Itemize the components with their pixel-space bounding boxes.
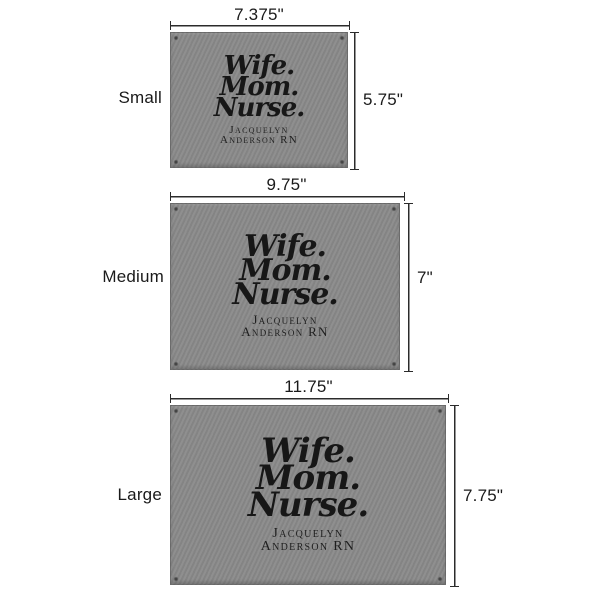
engraving-name-line-1: Jacquelyn xyxy=(261,527,356,540)
engraving-line-3: Nurse. xyxy=(214,98,305,119)
engraving-name-line-2: Anderson RN xyxy=(261,540,356,553)
engraving-name-line-2: Anderson RN xyxy=(220,135,298,145)
height-dimension-line xyxy=(404,203,413,372)
size-label: Medium xyxy=(50,267,164,287)
height-dimension-label: 7" xyxy=(417,268,433,288)
product-preview-medium: Wife. Mom. Nurse. Jacquelyn Anderson RN xyxy=(170,203,400,370)
width-dimension-line xyxy=(170,21,350,30)
size-label: Small xyxy=(50,88,162,108)
size-comparison-diagram: 7.375" Small Wife. Mom. Nurse. Jacquelyn… xyxy=(0,0,600,600)
width-dimension-line xyxy=(170,394,449,403)
product-preview-large: Wife. Mom. Nurse. Jacquelyn Anderson RN xyxy=(170,405,446,585)
engraving-name-line-2: Anderson RN xyxy=(241,326,329,338)
height-dimension-line xyxy=(450,405,459,587)
engraving-name-line-1: Jacquelyn xyxy=(220,125,298,135)
height-dimension-label: 7.75" xyxy=(463,486,503,506)
height-dimension-line xyxy=(350,32,359,170)
engraving-line-3: Nurse. xyxy=(232,283,337,307)
width-dimension-line xyxy=(170,192,405,201)
engraving-line-3: Nurse. xyxy=(248,492,368,519)
engraving-name-block: Jacquelyn Anderson RN xyxy=(220,125,298,145)
product-preview-small: Wife. Mom. Nurse. Jacquelyn Anderson RN xyxy=(170,32,348,168)
size-label: Large xyxy=(50,485,162,505)
engraving-name-block: Jacquelyn Anderson RN xyxy=(241,314,329,338)
height-dimension-label: 5.75" xyxy=(363,90,403,110)
engraving-name-block: Jacquelyn Anderson RN xyxy=(261,527,356,553)
